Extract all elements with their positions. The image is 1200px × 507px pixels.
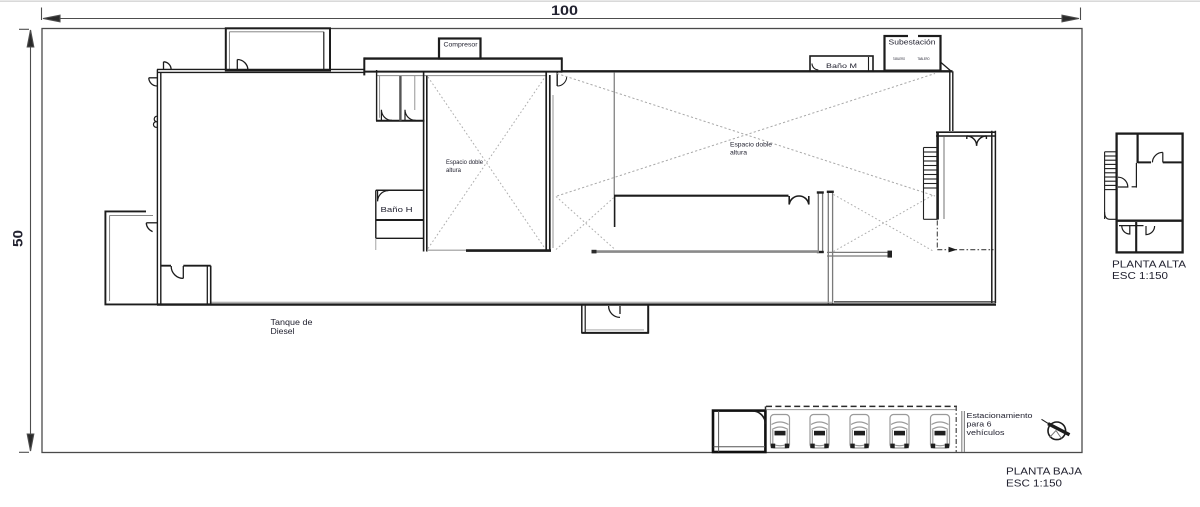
svg-text:100: 100 bbox=[551, 2, 578, 18]
svg-text:PLANTA BAJA: PLANTA BAJA bbox=[1006, 467, 1082, 478]
svg-text:Tanque de: Tanque de bbox=[271, 318, 313, 327]
svg-text:altura: altura bbox=[730, 150, 748, 157]
svg-text:Diesel: Diesel bbox=[271, 327, 295, 336]
svg-text:TABLERO: TABLERO bbox=[918, 57, 930, 61]
svg-text:Subestación: Subestación bbox=[889, 38, 936, 47]
svg-text:TABLERO: TABLERO bbox=[893, 57, 905, 61]
svg-text:Compresor: Compresor bbox=[444, 42, 479, 49]
svg-text:Baño M: Baño M bbox=[826, 63, 857, 70]
svg-text:50: 50 bbox=[10, 230, 26, 247]
svg-text:Baño H: Baño H bbox=[381, 205, 413, 214]
svg-text:vehículos: vehículos bbox=[967, 428, 1005, 437]
svg-text:ESC 1:150: ESC 1:150 bbox=[1112, 271, 1168, 282]
svg-text:Espacio doble: Espacio doble bbox=[730, 142, 773, 149]
svg-text:Espacio doble: Espacio doble bbox=[446, 159, 484, 166]
svg-text:ESC 1:150: ESC 1:150 bbox=[1006, 479, 1062, 490]
svg-text:altura: altura bbox=[446, 167, 462, 174]
svg-text:PLANTA ALTA: PLANTA ALTA bbox=[1112, 260, 1186, 271]
